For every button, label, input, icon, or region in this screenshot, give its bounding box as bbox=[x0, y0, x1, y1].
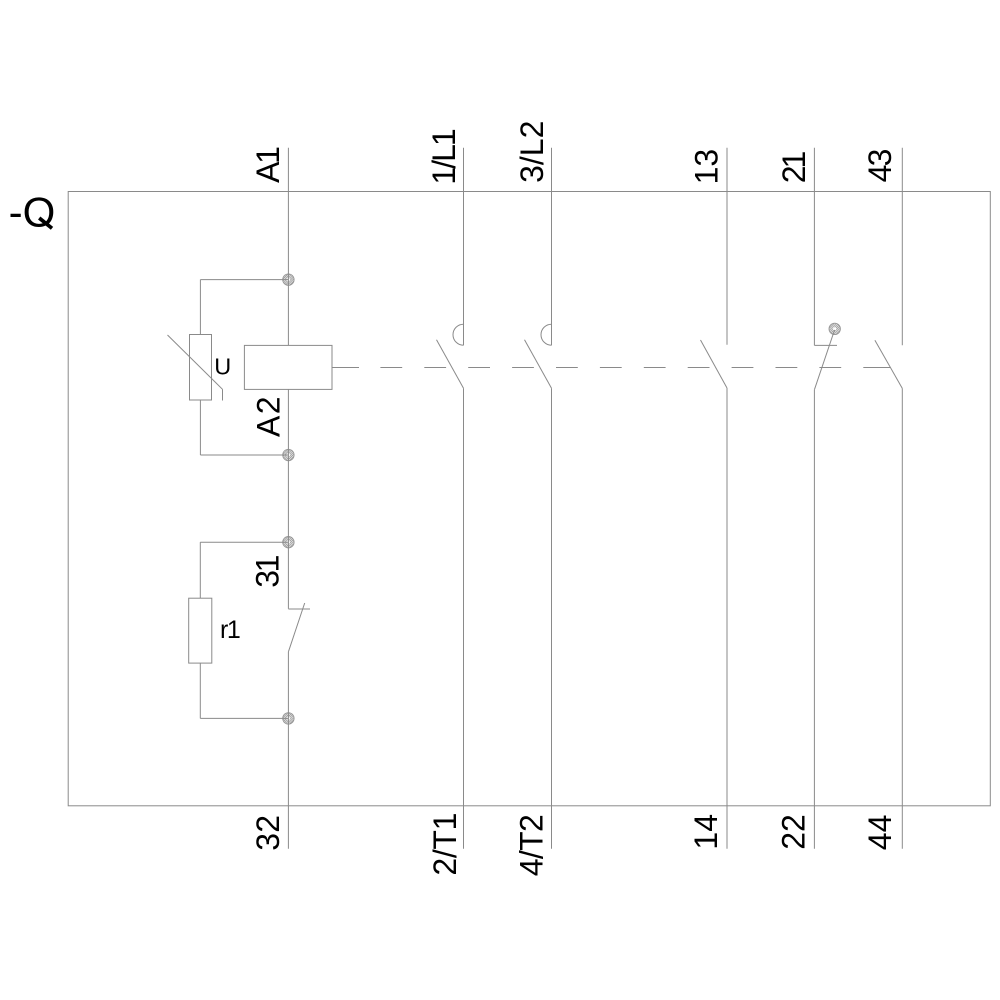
svg-text:U: U bbox=[214, 353, 231, 379]
svg-text:r1: r1 bbox=[220, 616, 240, 644]
svg-text:43: 43 bbox=[862, 149, 898, 182]
svg-text:44: 44 bbox=[862, 815, 898, 851]
svg-text:A1: A1 bbox=[250, 147, 286, 183]
svg-text:14: 14 bbox=[688, 814, 724, 850]
svg-text:22: 22 bbox=[775, 814, 811, 850]
svg-text:31: 31 bbox=[249, 555, 285, 587]
svg-text:-O: -O bbox=[9, 188, 56, 235]
svg-text:21: 21 bbox=[776, 152, 812, 184]
svg-text:13: 13 bbox=[689, 149, 725, 185]
svg-text:2/T1: 2/T1 bbox=[427, 813, 463, 876]
svg-text:1/L1: 1/L1 bbox=[426, 129, 462, 184]
svg-text:A2: A2 bbox=[250, 395, 286, 437]
svg-text:32: 32 bbox=[250, 815, 286, 851]
svg-text:3/L2: 3/L2 bbox=[514, 121, 550, 183]
svg-text:4/T2: 4/T2 bbox=[514, 815, 550, 876]
